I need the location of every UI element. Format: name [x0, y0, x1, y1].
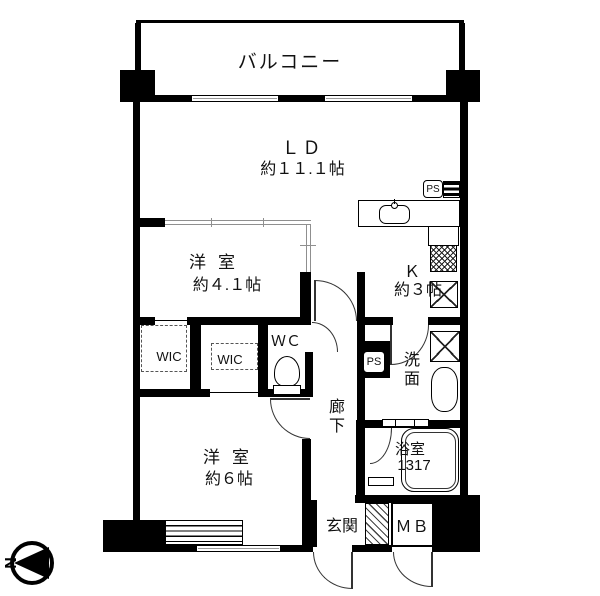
bedroom-main-door-arc — [270, 399, 310, 439]
bedroom-small-size: 約４.１帖 — [167, 271, 287, 295]
bath-door-frame — [382, 419, 429, 427]
entrance-door-arc — [313, 552, 352, 589]
bath-door-frame-tick — [414, 419, 415, 427]
wic-left-label: WIC — [144, 349, 194, 364]
mid-wall — [187, 317, 310, 325]
bath-counter-icon — [368, 477, 394, 486]
sliding-partition-tick — [211, 218, 212, 227]
bathroom-label: 浴室 — [385, 438, 435, 459]
sliding-partition-top — [165, 220, 311, 225]
ld-door-arc — [315, 280, 357, 321]
entrance-label: 玄関 — [318, 512, 366, 536]
floor-plan: PS PS ＭＢ バルコニー ＬＤ 約１１.１帖 洋室 約４.１帖 洋室 約６帖… — [0, 0, 600, 596]
bedroom-main-window — [197, 545, 280, 552]
entrance-shoe-step-hatch — [365, 503, 389, 545]
kitchen-size: 約３帖 — [358, 276, 478, 300]
wic-right-opening-line — [210, 392, 258, 393]
pipe-space-mid-label: PS — [367, 356, 382, 368]
outer-wall-left — [133, 100, 140, 552]
faucet-stem — [394, 199, 395, 204]
wic-divider-wall-right — [258, 317, 268, 397]
compass-north-label: N — [4, 557, 20, 569]
balcony-window-right — [325, 95, 412, 102]
meter-box: ＭＢ — [391, 502, 434, 547]
wic-row-bottom-wall — [133, 389, 210, 397]
north-wall-segment — [412, 95, 448, 102]
washroom-label: 洗面 — [402, 352, 422, 390]
wic-right-label: WIC — [205, 352, 255, 367]
corridor-label: 廊下 — [327, 399, 347, 437]
bedroom-main-size: 約６帖 — [169, 465, 289, 489]
outer-wall-right — [460, 100, 468, 552]
bedroom-small-label: 洋室 — [152, 248, 272, 273]
shutter-box — [165, 520, 243, 545]
compass-icon: N — [4, 536, 60, 592]
balcony-label: バルコニー — [200, 47, 380, 74]
north-wall-segment — [278, 95, 325, 102]
mid-wall — [133, 317, 155, 325]
compass-north: N — [4, 557, 20, 569]
pipe-space-mid-box: PS — [363, 351, 385, 373]
meter-box-label: ＭＢ — [395, 513, 429, 537]
living-dining-size: 約１１.１帖 — [220, 155, 385, 179]
washbasin-icon — [431, 367, 458, 412]
bath-door-frame-tick — [395, 419, 396, 427]
south-wall-segment — [352, 545, 392, 552]
bathroom-size: 1317 — [389, 457, 439, 474]
mid-wall — [357, 317, 393, 325]
duct-grille-icon — [443, 181, 460, 198]
pipe-space-top-label: PS — [426, 184, 439, 195]
balcony-outer-edge — [136, 20, 464, 23]
toilet-tank-icon — [273, 385, 301, 395]
bathroom-left-wall — [356, 428, 365, 503]
meter-box-surround — [432, 503, 480, 552]
toilet-bowl-icon — [274, 356, 300, 387]
pillar-top-right — [446, 70, 480, 102]
wc-door-arc — [312, 322, 338, 352]
sliding-partition-tick — [300, 245, 316, 246]
north-wall-segment — [152, 95, 192, 102]
toilet-label: ＷＣ — [264, 330, 308, 351]
bedroom-small-wall-stub — [133, 218, 165, 227]
balcony-window-left — [192, 95, 278, 102]
sliding-partition-tick — [263, 218, 264, 227]
pipe-space-top-box: PS — [423, 180, 443, 198]
pillar-top-left — [120, 70, 155, 102]
meter-box-door-arc — [393, 552, 432, 587]
south-wall-segment — [140, 545, 197, 552]
kitchen-counter-column — [428, 226, 459, 246]
mid-wall — [428, 317, 460, 325]
wic-left-opening-line — [155, 320, 187, 321]
laundry-space-xbox — [430, 331, 460, 362]
sliding-partition-right — [306, 225, 311, 272]
entrance-wall-stub — [308, 500, 317, 547]
